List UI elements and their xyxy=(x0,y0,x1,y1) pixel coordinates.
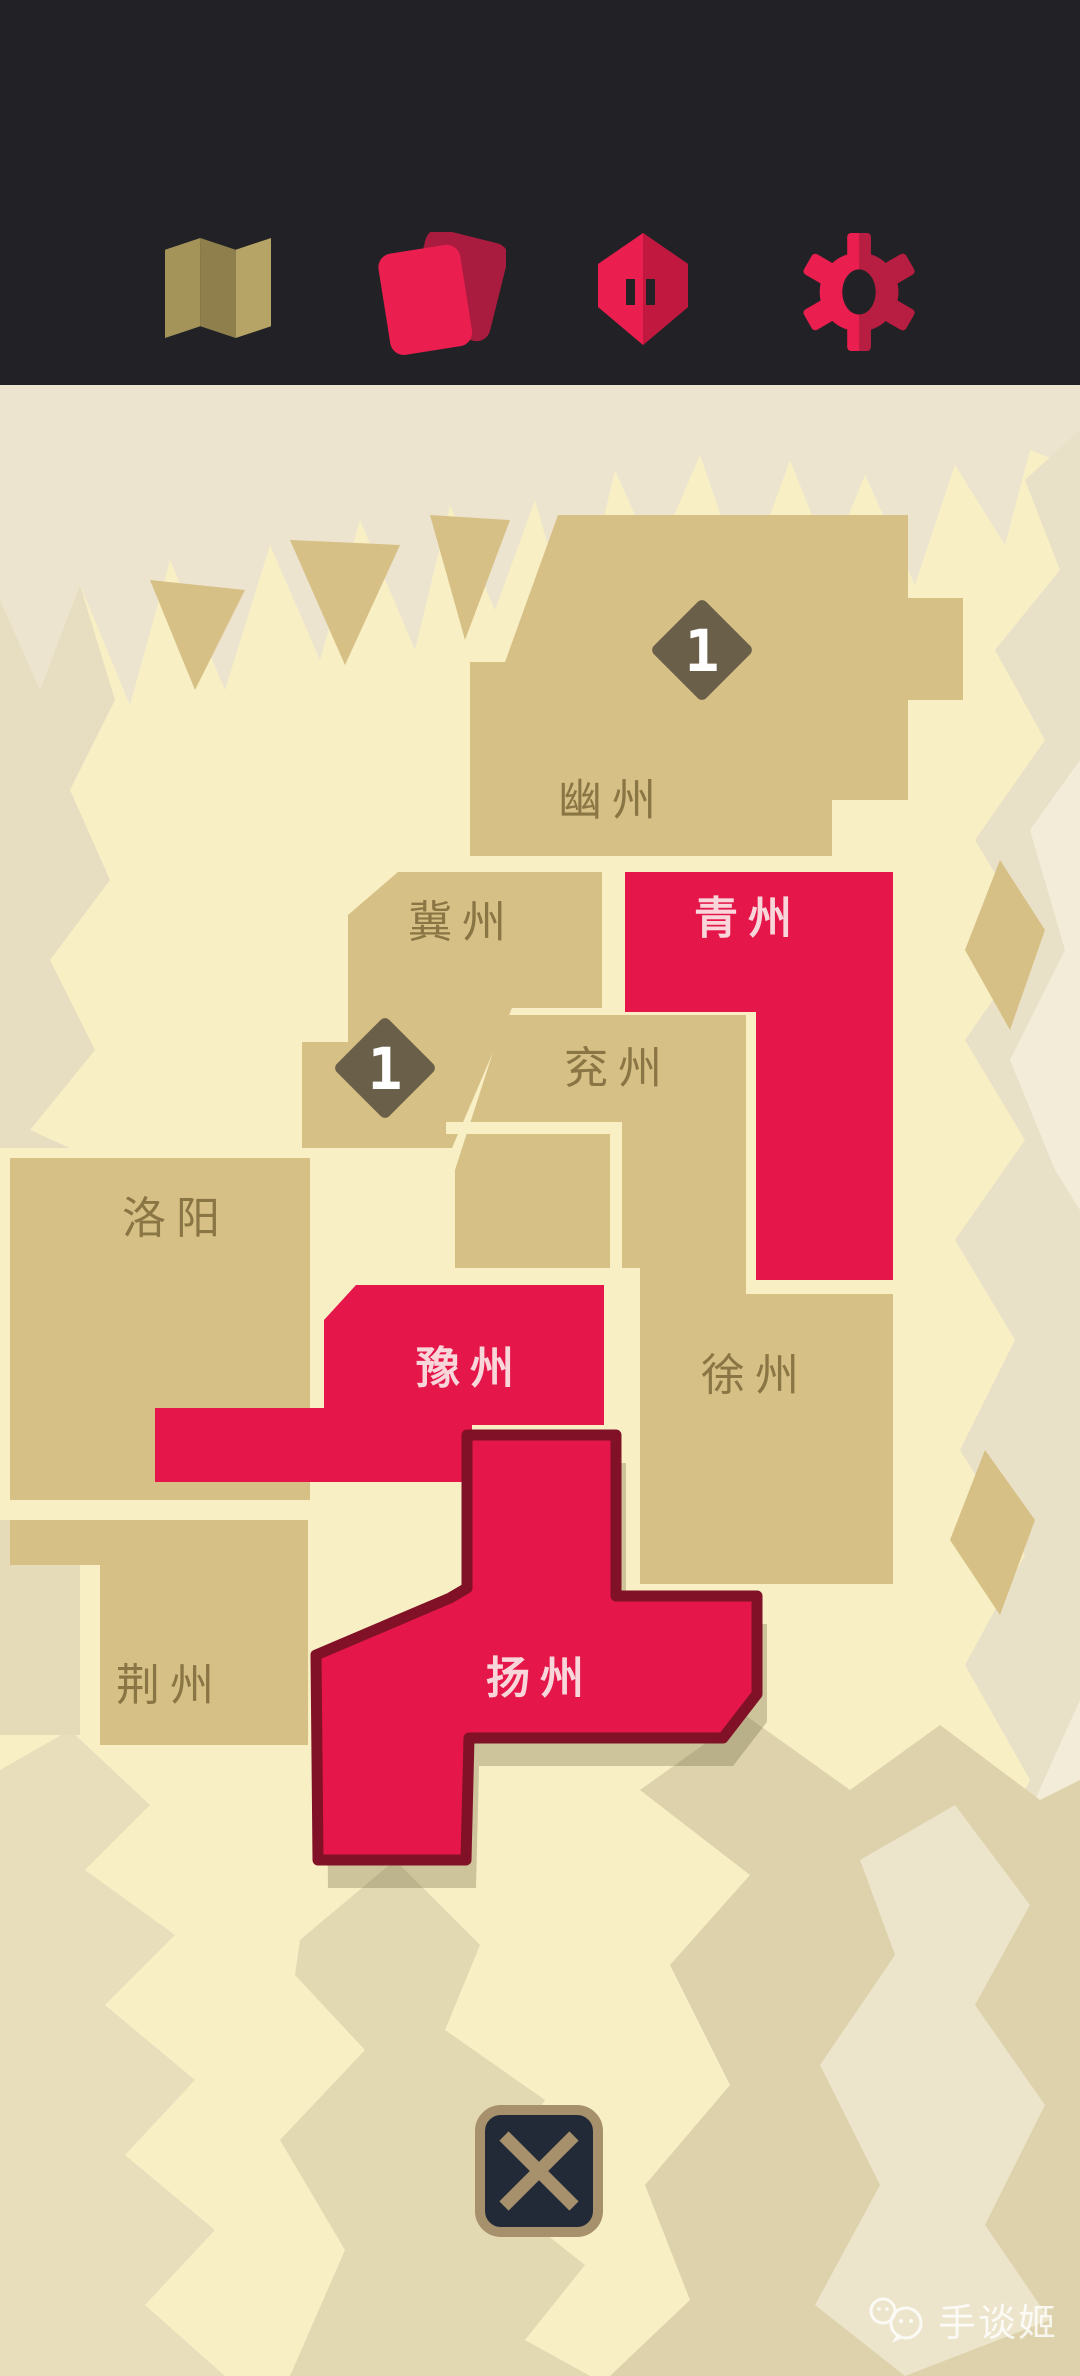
close-button[interactable] xyxy=(475,2105,603,2237)
province-border-line xyxy=(610,1122,622,1294)
region-label-yanzhou: 兖州 xyxy=(564,1043,672,1094)
gear-icon xyxy=(800,232,918,352)
cards-button[interactable] xyxy=(378,232,506,358)
region-label-youzhou: 幽州 xyxy=(558,775,666,826)
close-icon xyxy=(496,2128,582,2214)
region-label-xuzhou: 徐州 xyxy=(701,1350,809,1401)
settings-button[interactable] xyxy=(800,232,918,352)
castle-button[interactable] xyxy=(598,232,688,346)
province-border-line xyxy=(446,1122,616,1134)
map-icon xyxy=(165,232,271,344)
cards-icon xyxy=(378,232,506,358)
army-count: 1 xyxy=(368,1035,403,1103)
army-count: 1 xyxy=(685,617,720,685)
map-button[interactable] xyxy=(165,232,271,344)
region-label-qingzhou: 青州 xyxy=(694,893,802,944)
region-label-yangzhou: 扬州 xyxy=(486,1653,594,1704)
chat-bubbles-icon xyxy=(866,2296,928,2344)
top-toolbar xyxy=(0,0,1080,385)
watermark-text: 手谈姬 xyxy=(938,2292,1058,2347)
region-label-yuzhou: 豫州 xyxy=(416,1343,524,1394)
game-screen: 幽州 冀州 青州 兖州 洛阳 豫州 徐州 荆州 扬州 1 1 xyxy=(0,0,1080,2376)
region-label-jingzhou: 荆州 xyxy=(116,1660,224,1711)
region-label-jizhou: 冀州 xyxy=(408,897,516,948)
watermark: 手谈姬 xyxy=(866,2292,1058,2347)
castle-icon xyxy=(598,232,688,346)
region-label-luoyang: 洛阳 xyxy=(122,1193,230,1244)
